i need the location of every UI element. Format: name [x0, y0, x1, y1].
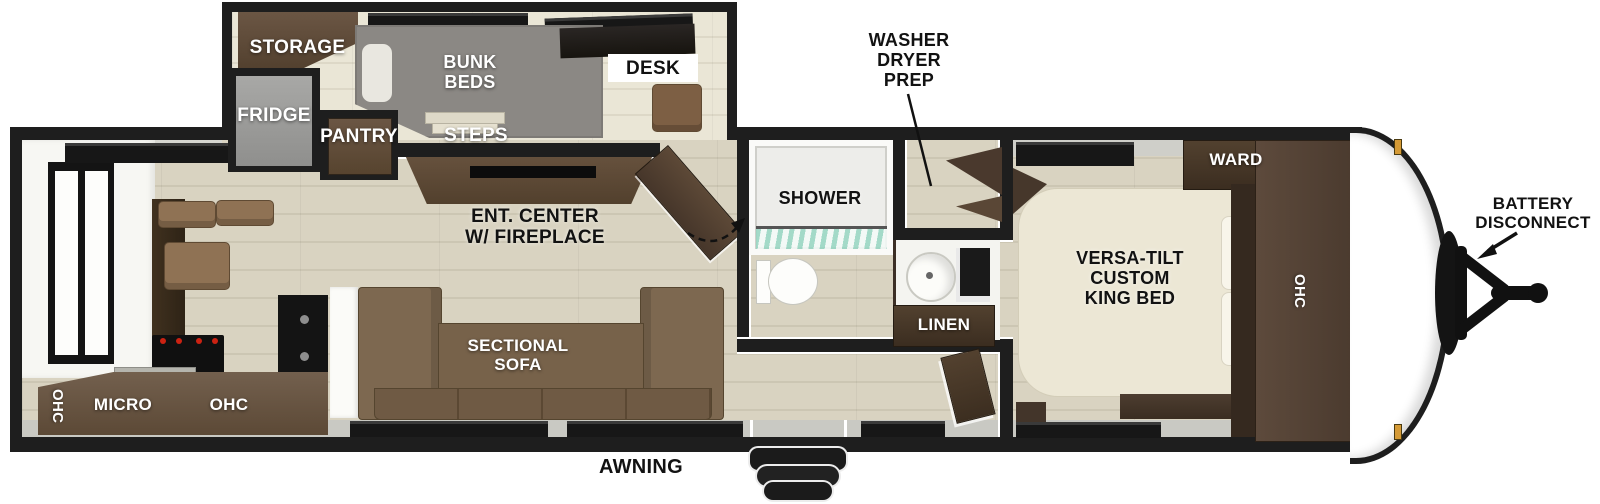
- ent-center-cabinet: [398, 157, 660, 204]
- pantry-label: PANTRY: [314, 126, 404, 147]
- fridge-label: FRIDGE: [232, 105, 316, 126]
- desk-label: DESK: [608, 58, 698, 79]
- hitch-crossbar: [1455, 246, 1467, 340]
- bed-bench: [1120, 394, 1238, 419]
- entry-door-jamb-left: [750, 420, 753, 437]
- left-wall: [10, 127, 22, 451]
- bath-mirror: [956, 248, 990, 302]
- toilet-bowl: [768, 258, 818, 305]
- entry-step-3: [764, 482, 832, 500]
- slide-top-wall: [222, 2, 737, 12]
- bunk-beds-label: BUNK BEDS: [420, 52, 520, 92]
- washer-room-wall-h: [893, 228, 1013, 240]
- hitch-arm-upper: [1461, 256, 1505, 290]
- stove-burner-1: [160, 338, 166, 344]
- dinette-chair-2: [216, 200, 274, 226]
- bunk-pillow: [362, 44, 392, 102]
- ohc-bedroom-label: OHC: [1290, 262, 1307, 320]
- hitch-coupler-knob: [1528, 283, 1548, 303]
- front-cap: [1350, 127, 1451, 464]
- sink-drain: [926, 272, 933, 279]
- shower-glass: [756, 229, 887, 249]
- king-bed-label: VERSA-TILT CUSTOM KING BED: [1040, 248, 1220, 308]
- battery-disconnect-label: BATTERY DISCONNECT: [1466, 194, 1600, 232]
- sofa-seats: [374, 388, 712, 420]
- ent-center-tv: [470, 166, 596, 178]
- sofa-window-2: [567, 421, 743, 437]
- cabinet-knob-2: [300, 352, 309, 361]
- cabinet-knob-1: [300, 315, 309, 324]
- bath-bottom-window: [861, 421, 945, 437]
- micro-label: MICRO: [82, 395, 164, 414]
- clearance-light-top: [1394, 139, 1402, 155]
- hitch-assembly: [1435, 231, 1548, 355]
- washer-dryer-prep-label: WASHER DRYER PREP: [850, 30, 968, 90]
- ward-divider-panel: [1231, 184, 1255, 437]
- dinette-chair-3: [164, 242, 230, 290]
- battery-pointer-arrowhead: [1477, 244, 1497, 259]
- shower-label: SHOWER: [760, 188, 880, 208]
- stove-burner-2: [176, 338, 182, 344]
- sofa-window-1: [350, 421, 548, 437]
- storage-label: STORAGE: [240, 37, 355, 58]
- top-wall-rear: [10, 127, 222, 140]
- clearance-light-bottom: [1394, 424, 1402, 440]
- rear-window-pane-right: [85, 171, 108, 355]
- rear-window-pane-left: [55, 171, 78, 355]
- stove-burner-3: [196, 338, 202, 344]
- ohc-kitchen-label: OHC: [200, 395, 258, 414]
- top-wall-front: [737, 127, 1362, 140]
- ent-center-label: ENT. CENTER W/ FIREPLACE: [430, 206, 640, 249]
- slide-right-wall: [727, 2, 737, 140]
- bedroom-top-window: [1016, 142, 1134, 166]
- awning-label: AWNING: [586, 456, 696, 478]
- sofa-end-table: [330, 287, 358, 418]
- washer-room-wall-v: [893, 140, 905, 240]
- hitch-arm-lower: [1461, 296, 1505, 330]
- bottom-wall: [10, 437, 1362, 452]
- stove-burner-4: [212, 338, 218, 344]
- ent-center-wall: [392, 143, 660, 157]
- desk-chair: [652, 84, 702, 132]
- rv-floorplan: OHC MICRO OHC ENT. CENTER W/ FIREPLACE S…: [0, 0, 1600, 504]
- sectional-sofa-label: SECTIONAL SOFA: [455, 336, 581, 374]
- ward-label: WARD: [1196, 150, 1276, 169]
- bath-left-wall: [737, 140, 749, 352]
- ohc-left-label: OHC: [48, 380, 65, 432]
- battery-pointer-line: [1488, 233, 1517, 251]
- steps-label: STEPS: [434, 125, 518, 146]
- entry-door-jamb-right: [844, 420, 847, 437]
- linen-label: LINEN: [900, 315, 988, 334]
- dinette-chair-1: [158, 201, 216, 228]
- bedroom-bottom-window: [1016, 422, 1161, 438]
- hitch-frame-notch: [1487, 285, 1499, 301]
- bedroom-wall-lower: [1000, 352, 1013, 437]
